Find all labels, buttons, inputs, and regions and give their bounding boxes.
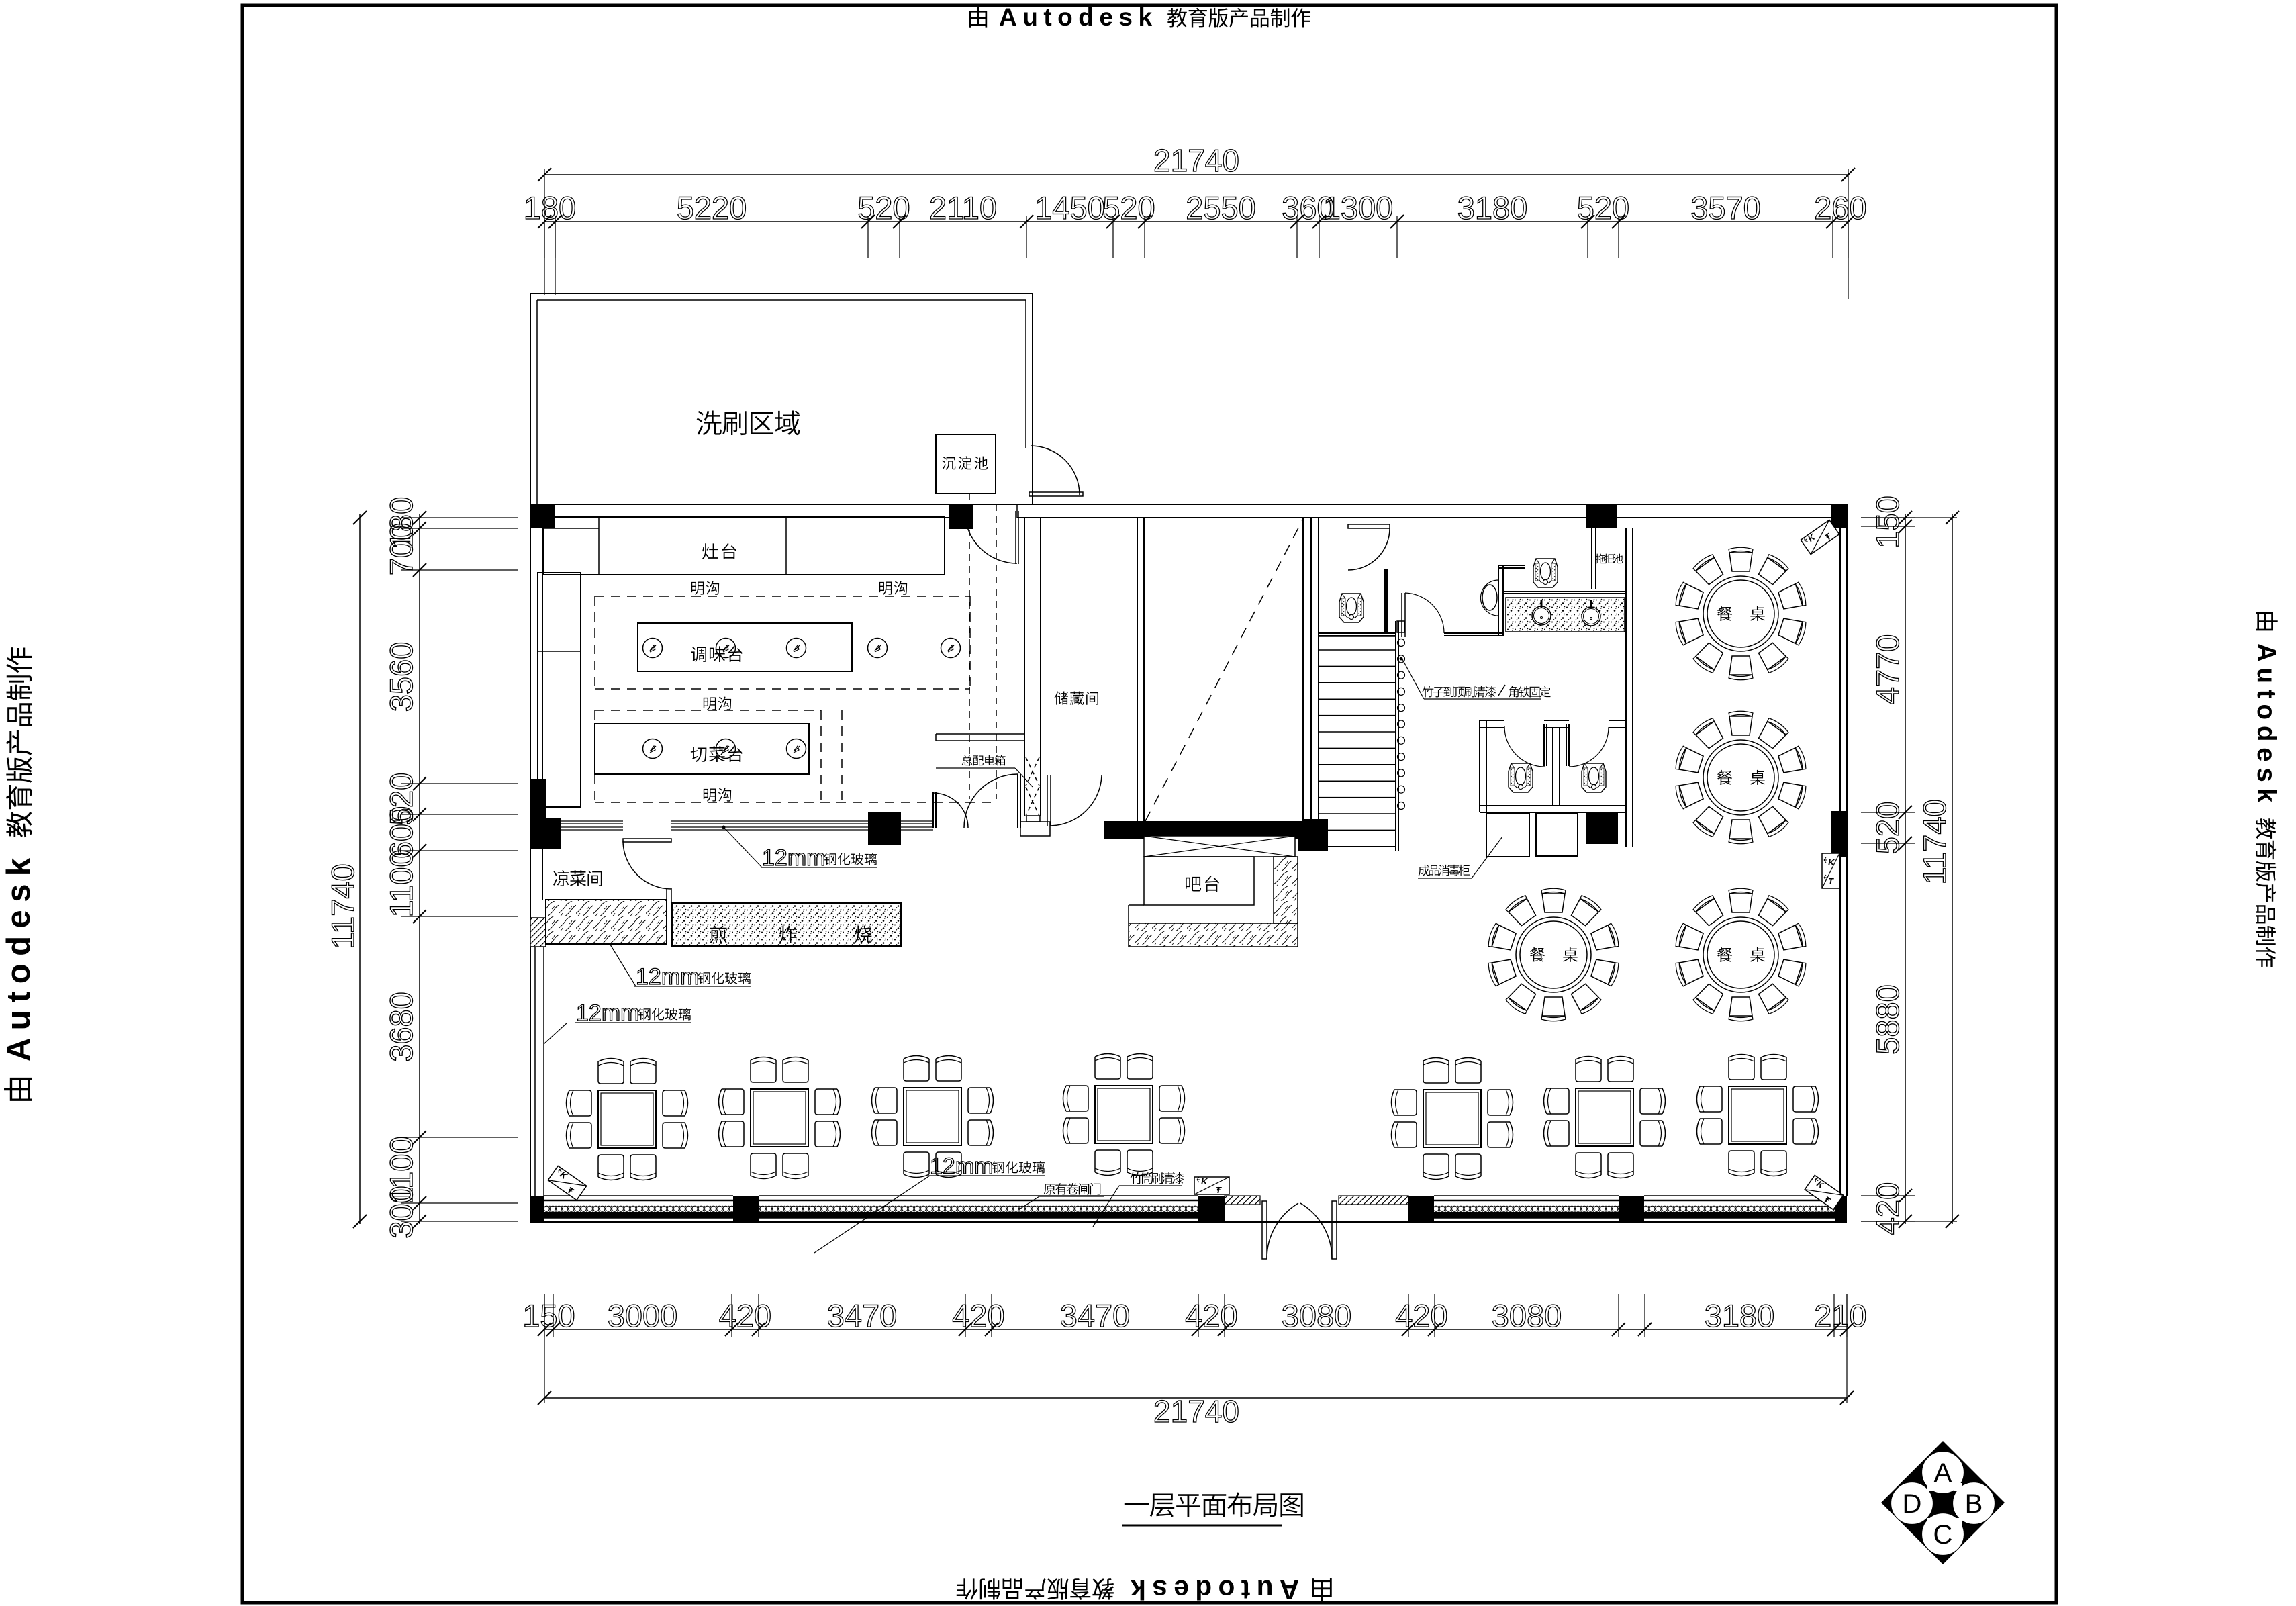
svg-text:700: 700 [383, 523, 419, 575]
svg-text:21740: 21740 [1153, 143, 1239, 178]
svg-text:3080: 3080 [1282, 1298, 1352, 1333]
svg-text:300: 300 [383, 1186, 419, 1238]
svg-text:12mm: 12mm [762, 845, 825, 871]
svg-text:3470: 3470 [827, 1298, 898, 1333]
svg-text:420: 420 [1185, 1298, 1237, 1333]
svg-text:520: 520 [1870, 802, 1905, 854]
svg-text:T: T [1828, 876, 1834, 886]
svg-text:1100: 1100 [383, 849, 419, 917]
svg-text:420: 420 [719, 1298, 771, 1333]
svg-text:1300: 1300 [1323, 190, 1394, 226]
svg-text:3470: 3470 [1060, 1298, 1131, 1333]
svg-text:C: C [1933, 1520, 1953, 1550]
svg-text:260: 260 [1814, 190, 1866, 226]
svg-text:Autodesk: Autodesk [1125, 1574, 1299, 1605]
svg-text:B: B [1965, 1489, 1983, 1519]
svg-text:3180: 3180 [1457, 190, 1528, 226]
svg-text:3560: 3560 [383, 642, 419, 712]
svg-text:210: 210 [1814, 1298, 1866, 1333]
svg-text:1450: 1450 [1035, 190, 1105, 226]
svg-text:520: 520 [1577, 190, 1629, 226]
svg-text:Autodesk: Autodesk [2252, 643, 2281, 808]
svg-text:21740: 21740 [1153, 1394, 1239, 1429]
svg-text:11740: 11740 [325, 863, 361, 949]
svg-text:150: 150 [1870, 495, 1905, 548]
svg-text:5220: 5220 [677, 190, 747, 226]
svg-text:420: 420 [1870, 1182, 1905, 1235]
svg-text:3680: 3680 [383, 992, 419, 1062]
svg-text:12mm: 12mm [636, 964, 699, 990]
svg-text:180: 180 [524, 190, 576, 226]
svg-text:3080: 3080 [1492, 1298, 1562, 1333]
svg-text:Autodesk: Autodesk [0, 851, 37, 1062]
svg-text:11740: 11740 [1917, 799, 1952, 884]
svg-text:12mm: 12mm [576, 1000, 639, 1026]
svg-text:D: D [1903, 1489, 1922, 1519]
svg-text:Autodesk: Autodesk [999, 3, 1158, 31]
svg-text:420: 420 [1395, 1298, 1447, 1333]
svg-text:420: 420 [952, 1298, 1004, 1333]
svg-text:A: A [1934, 1458, 1952, 1488]
svg-text:3570: 3570 [1690, 190, 1761, 226]
svg-text:5880: 5880 [1870, 984, 1905, 1055]
svg-text:520: 520 [857, 190, 910, 226]
svg-text:520: 520 [1102, 190, 1155, 226]
svg-text:3000: 3000 [608, 1298, 678, 1333]
svg-text:2550: 2550 [1186, 190, 1256, 226]
svg-text:4770: 4770 [1870, 634, 1905, 705]
svg-text:K: K [1828, 857, 1835, 867]
svg-text:12mm: 12mm [930, 1153, 993, 1179]
svg-text:2110: 2110 [929, 190, 997, 226]
svg-text:3180: 3180 [1705, 1298, 1775, 1333]
svg-text:150: 150 [522, 1298, 575, 1333]
